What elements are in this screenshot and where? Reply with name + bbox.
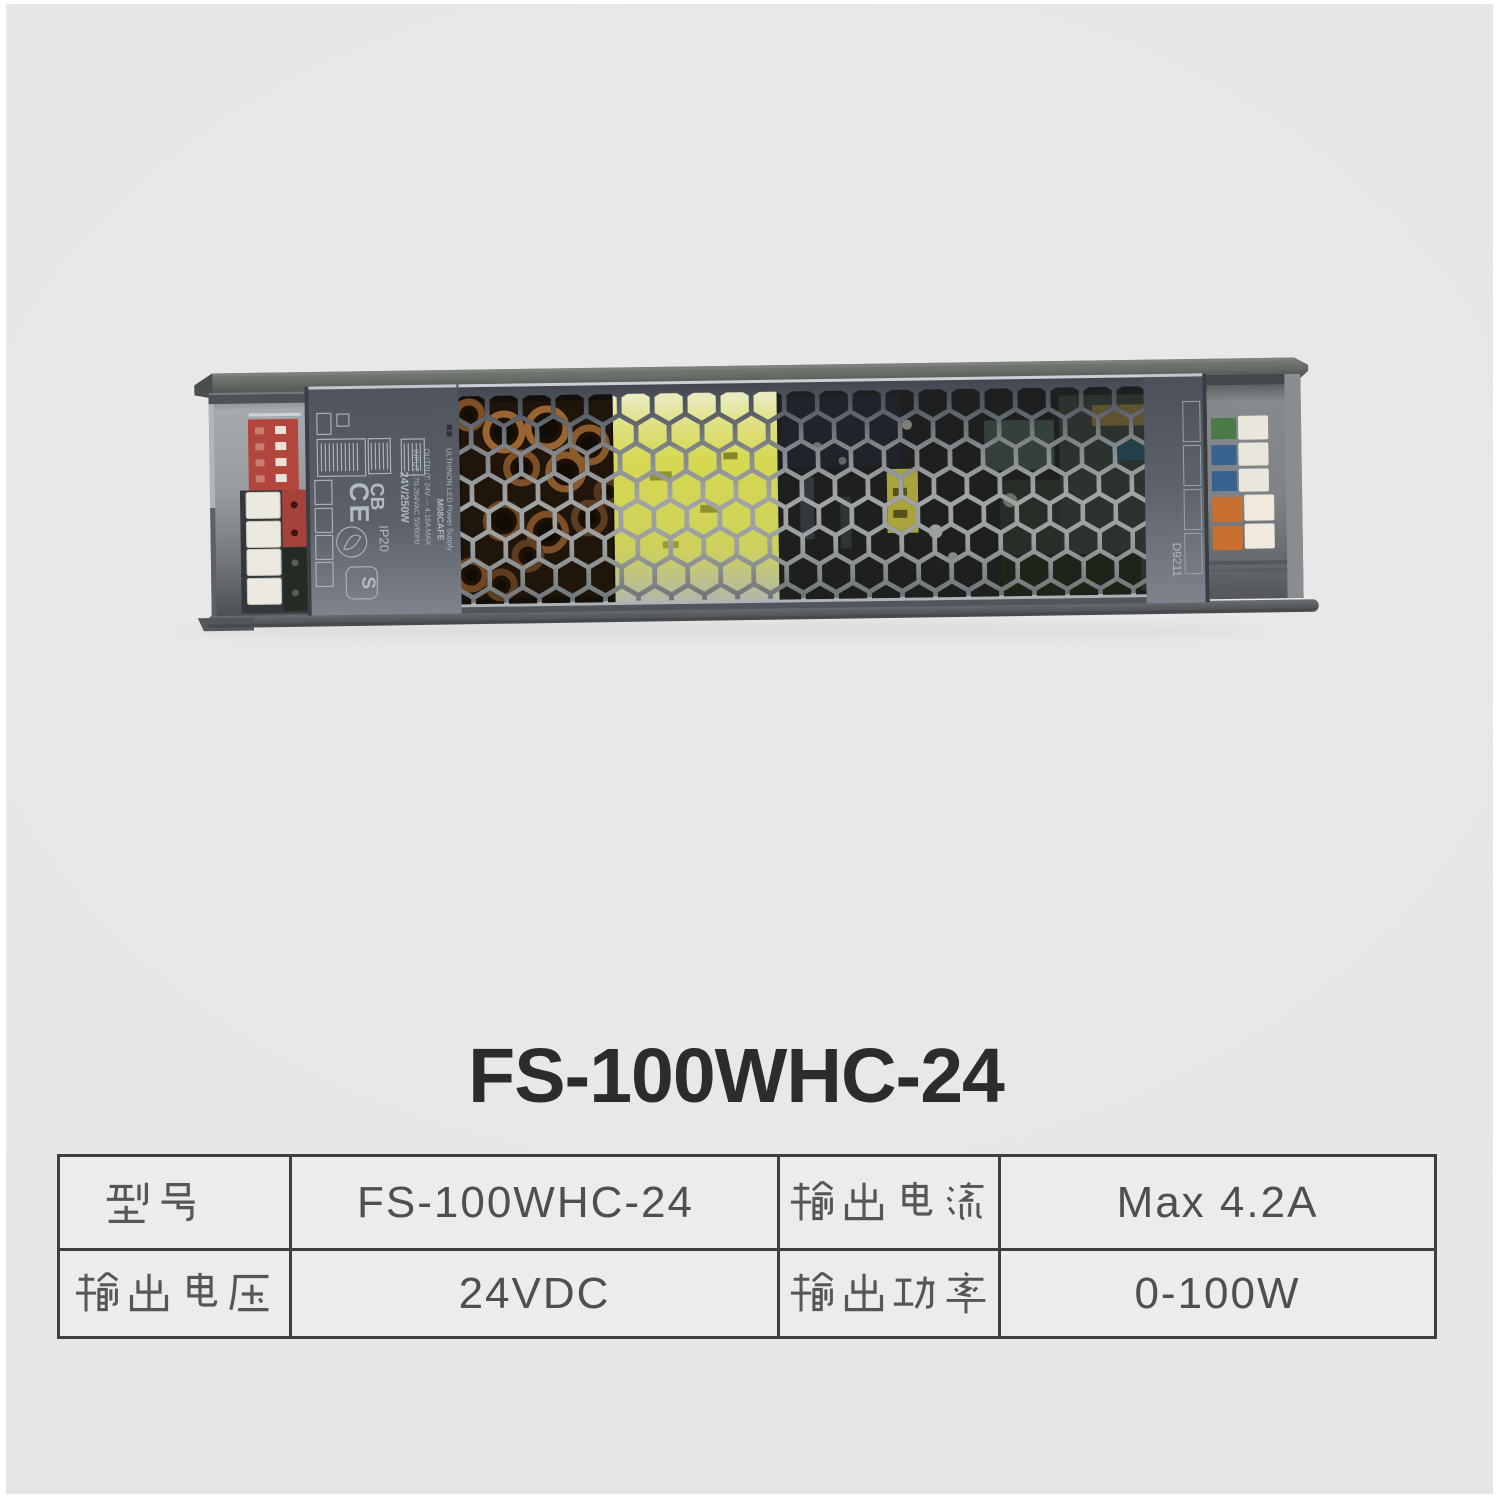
svg-text:OUTPUT: 24V --- 4.16A MAX: OUTPUT: 24V --- 4.16A MAX	[422, 448, 432, 545]
svg-text:INPUT:170-264VAC 50/60Hz: INPUT:170-264VAC 50/60Hz	[411, 449, 421, 546]
svg-text:ULTHINON LED Power Supply: ULTHINON LED Power Supply	[444, 448, 455, 551]
svg-text:D9211: D9211	[1170, 542, 1185, 577]
svg-text:■■: ■■	[443, 424, 455, 437]
svg-text:CB: CB	[366, 483, 387, 511]
svg-text:IP20: IP20	[376, 525, 391, 552]
svg-text:M08CAFE: M08CAFE	[435, 499, 446, 541]
svg-text:S: S	[357, 576, 378, 589]
svg-text:24V/250W: 24V/250W	[398, 471, 411, 523]
